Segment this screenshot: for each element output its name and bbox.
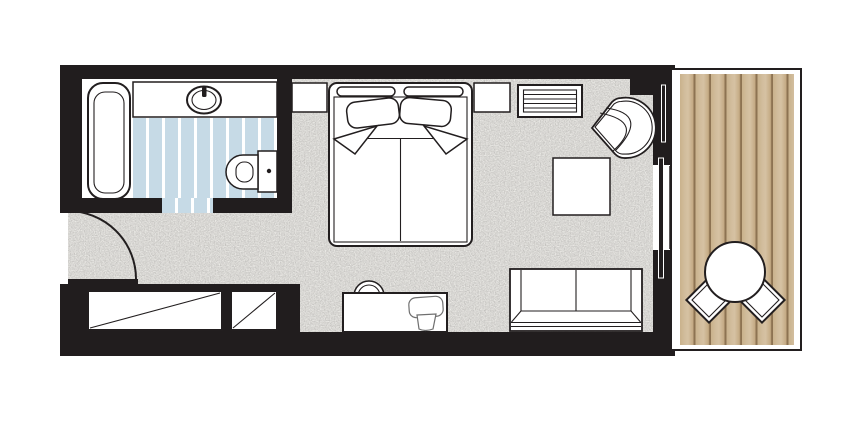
toilet-flush-button [267, 169, 271, 173]
corner-armchair [592, 98, 656, 158]
headboard-cushion-left [337, 87, 395, 96]
entry-door-swing-arc [68, 211, 136, 279]
desk-chair-seat [417, 314, 436, 331]
nightstand-left [292, 83, 327, 112]
pillow-left [346, 97, 401, 129]
furniture-layer [0, 0, 863, 422]
pillow-right [399, 97, 452, 127]
headboard-cushion-right [404, 87, 463, 96]
sliding-door-panel-fixed [662, 85, 666, 142]
sliding-door-panel [659, 158, 664, 278]
side-table [553, 158, 610, 215]
faucet-icon [202, 87, 207, 97]
entry-door-leaf [68, 279, 138, 285]
nightstand-right [474, 83, 510, 112]
balcony-round-table [705, 242, 765, 302]
floor-plan [0, 0, 863, 422]
